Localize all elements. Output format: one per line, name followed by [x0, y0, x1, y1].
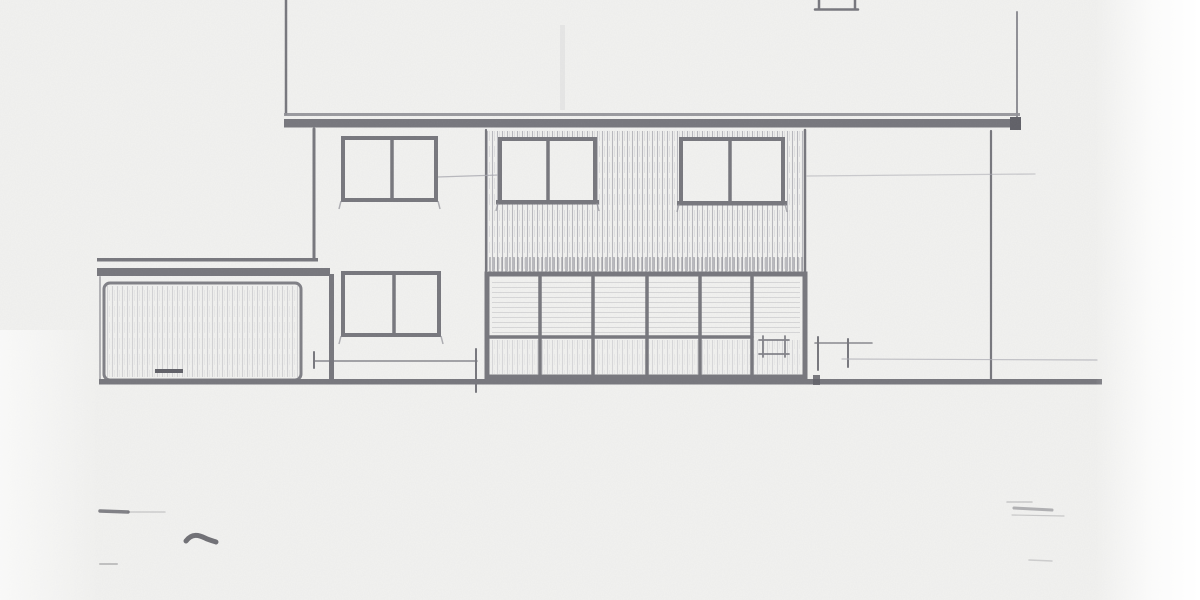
paper-grain-texture	[0, 0, 1200, 600]
scanned-drawing-sheet	[0, 0, 1200, 600]
paper-edge-fade-left	[0, 330, 100, 600]
elevation-drawing	[0, 0, 1200, 600]
paper-edge-fade-right	[1095, 0, 1200, 600]
